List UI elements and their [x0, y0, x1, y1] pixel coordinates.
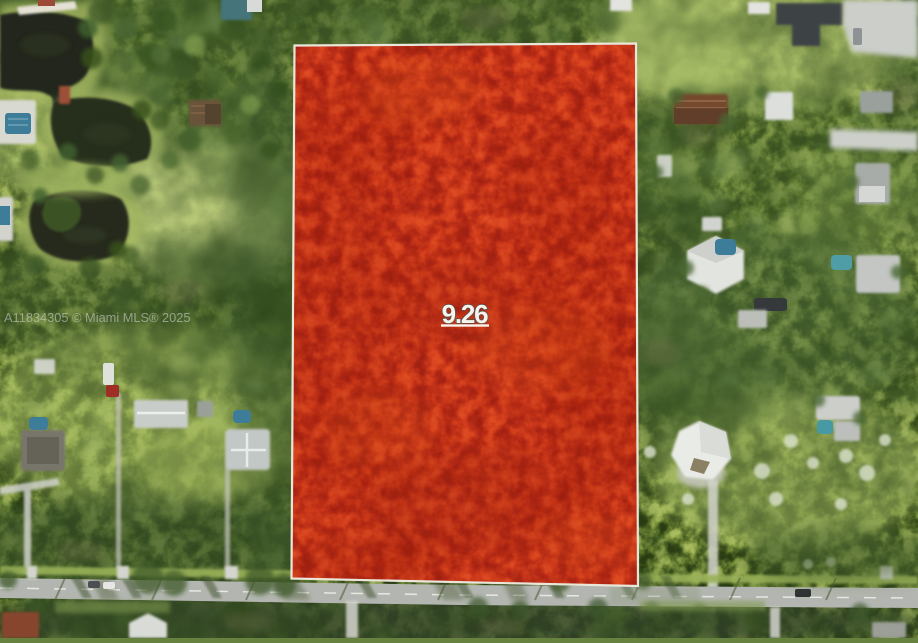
svg-text:A11834305 © Miami MLS® 2025: A11834305 © Miami MLS® 2025 [4, 310, 191, 325]
